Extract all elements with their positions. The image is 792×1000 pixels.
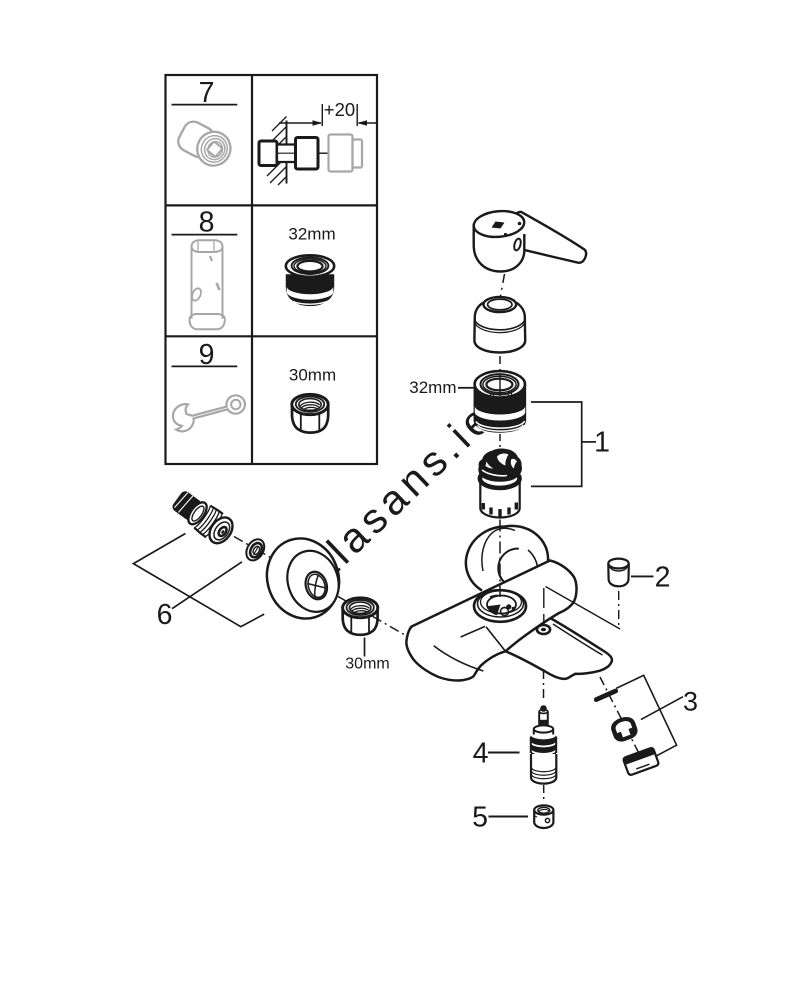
- svg-text:2: 2: [655, 562, 671, 594]
- svg-text:1: 1: [594, 427, 610, 459]
- svg-text:6: 6: [157, 599, 173, 631]
- svg-text:8: 8: [199, 206, 215, 238]
- svg-text:32mm: 32mm: [288, 225, 335, 244]
- svg-text:30mm: 30mm: [345, 656, 389, 673]
- svg-text:30mm: 30mm: [289, 366, 336, 385]
- svg-text:4: 4: [473, 738, 489, 770]
- svg-text:+20: +20: [324, 99, 355, 120]
- svg-text:3: 3: [683, 687, 698, 717]
- svg-text:5: 5: [472, 802, 488, 834]
- svg-text:32mm: 32mm: [409, 378, 456, 397]
